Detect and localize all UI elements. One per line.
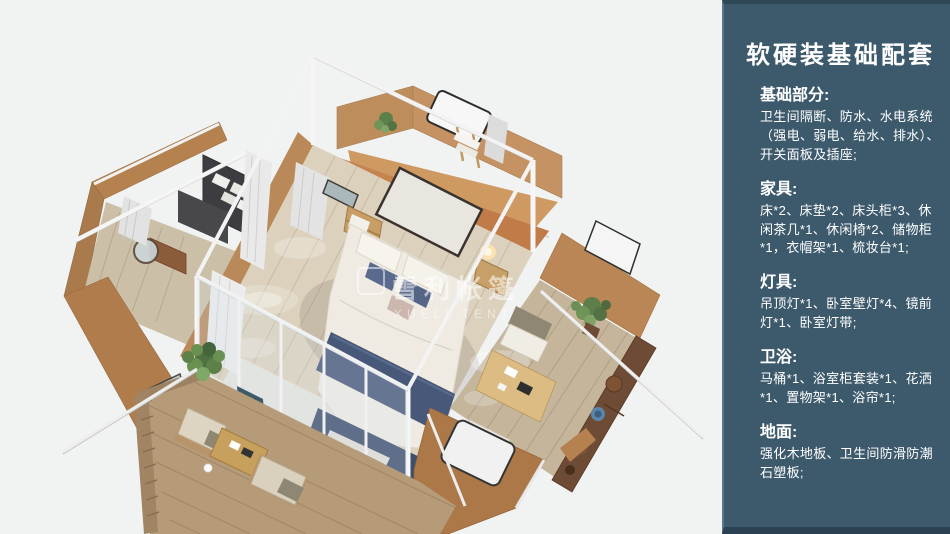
deck-lamp <box>204 464 212 472</box>
spec-heading: 卫浴: <box>760 348 942 367</box>
spec-heading: 地面: <box>760 423 942 442</box>
spec-section-furniture: 家具: 床*2、床垫*2、床头柜*3、休闲茶几*1、休闲椅*2、储物柜*1，衣帽… <box>724 180 950 259</box>
spec-body: 卫生间隔断、防水、水电系统（强电、弱电、给水、排水）、开关面板及插座; <box>760 108 942 165</box>
spec-section-bathroom: 卫浴: 马桶*1、浴室柜套装*1、花洒*1、置物架*1、浴帘*1; <box>724 348 950 408</box>
watermark-en: XUELI TENT <box>394 307 513 321</box>
render-area: 雪利帐篷 XUELI TENT <box>0 0 722 534</box>
floorplan-render: 雪利帐篷 XUELI TENT <box>0 0 722 534</box>
spec-section-basics: 基础部分: 卫生间隔断、防水、水电系统（强电、弱电、给水、排水）、开关面板及插座… <box>724 86 950 165</box>
spec-heading: 基础部分: <box>760 86 942 105</box>
spec-body: 强化木地板、卫生间防滑防潮石塑板; <box>760 445 942 483</box>
spec-section-lighting: 灯具: 吊顶灯*1、卧室壁灯*4、镜前灯*1、卧室灯带; <box>724 273 950 333</box>
spec-heading: 灯具: <box>760 273 942 292</box>
spec-body: 马桶*1、浴室柜套装*1、花洒*1、置物架*1、浴帘*1; <box>760 370 942 408</box>
panel-title: 软硬装基础配套 <box>746 42 944 71</box>
slide: 雪利帐篷 XUELI TENT 软硬装基础配套 基础部分: 卫生间隔断、防水、水… <box>0 0 950 534</box>
spec-body: 床*2、床垫*2、床头柜*3、休闲茶几*1、休闲椅*2、储物柜*1，衣帽架*1、… <box>760 202 942 259</box>
spec-panel: 软硬装基础配套 基础部分: 卫生间隔断、防水、水电系统（强电、弱电、给水、排水）… <box>722 0 950 534</box>
watermark-cn: 雪利帐篷 <box>392 274 520 304</box>
spec-heading: 家具: <box>760 180 942 199</box>
spec-section-flooring: 地面: 强化木地板、卫生间防滑防潮石塑板; <box>724 423 950 483</box>
spec-body: 吊顶灯*1、卧室壁灯*4、镜前灯*1、卧室灯带; <box>760 295 942 333</box>
